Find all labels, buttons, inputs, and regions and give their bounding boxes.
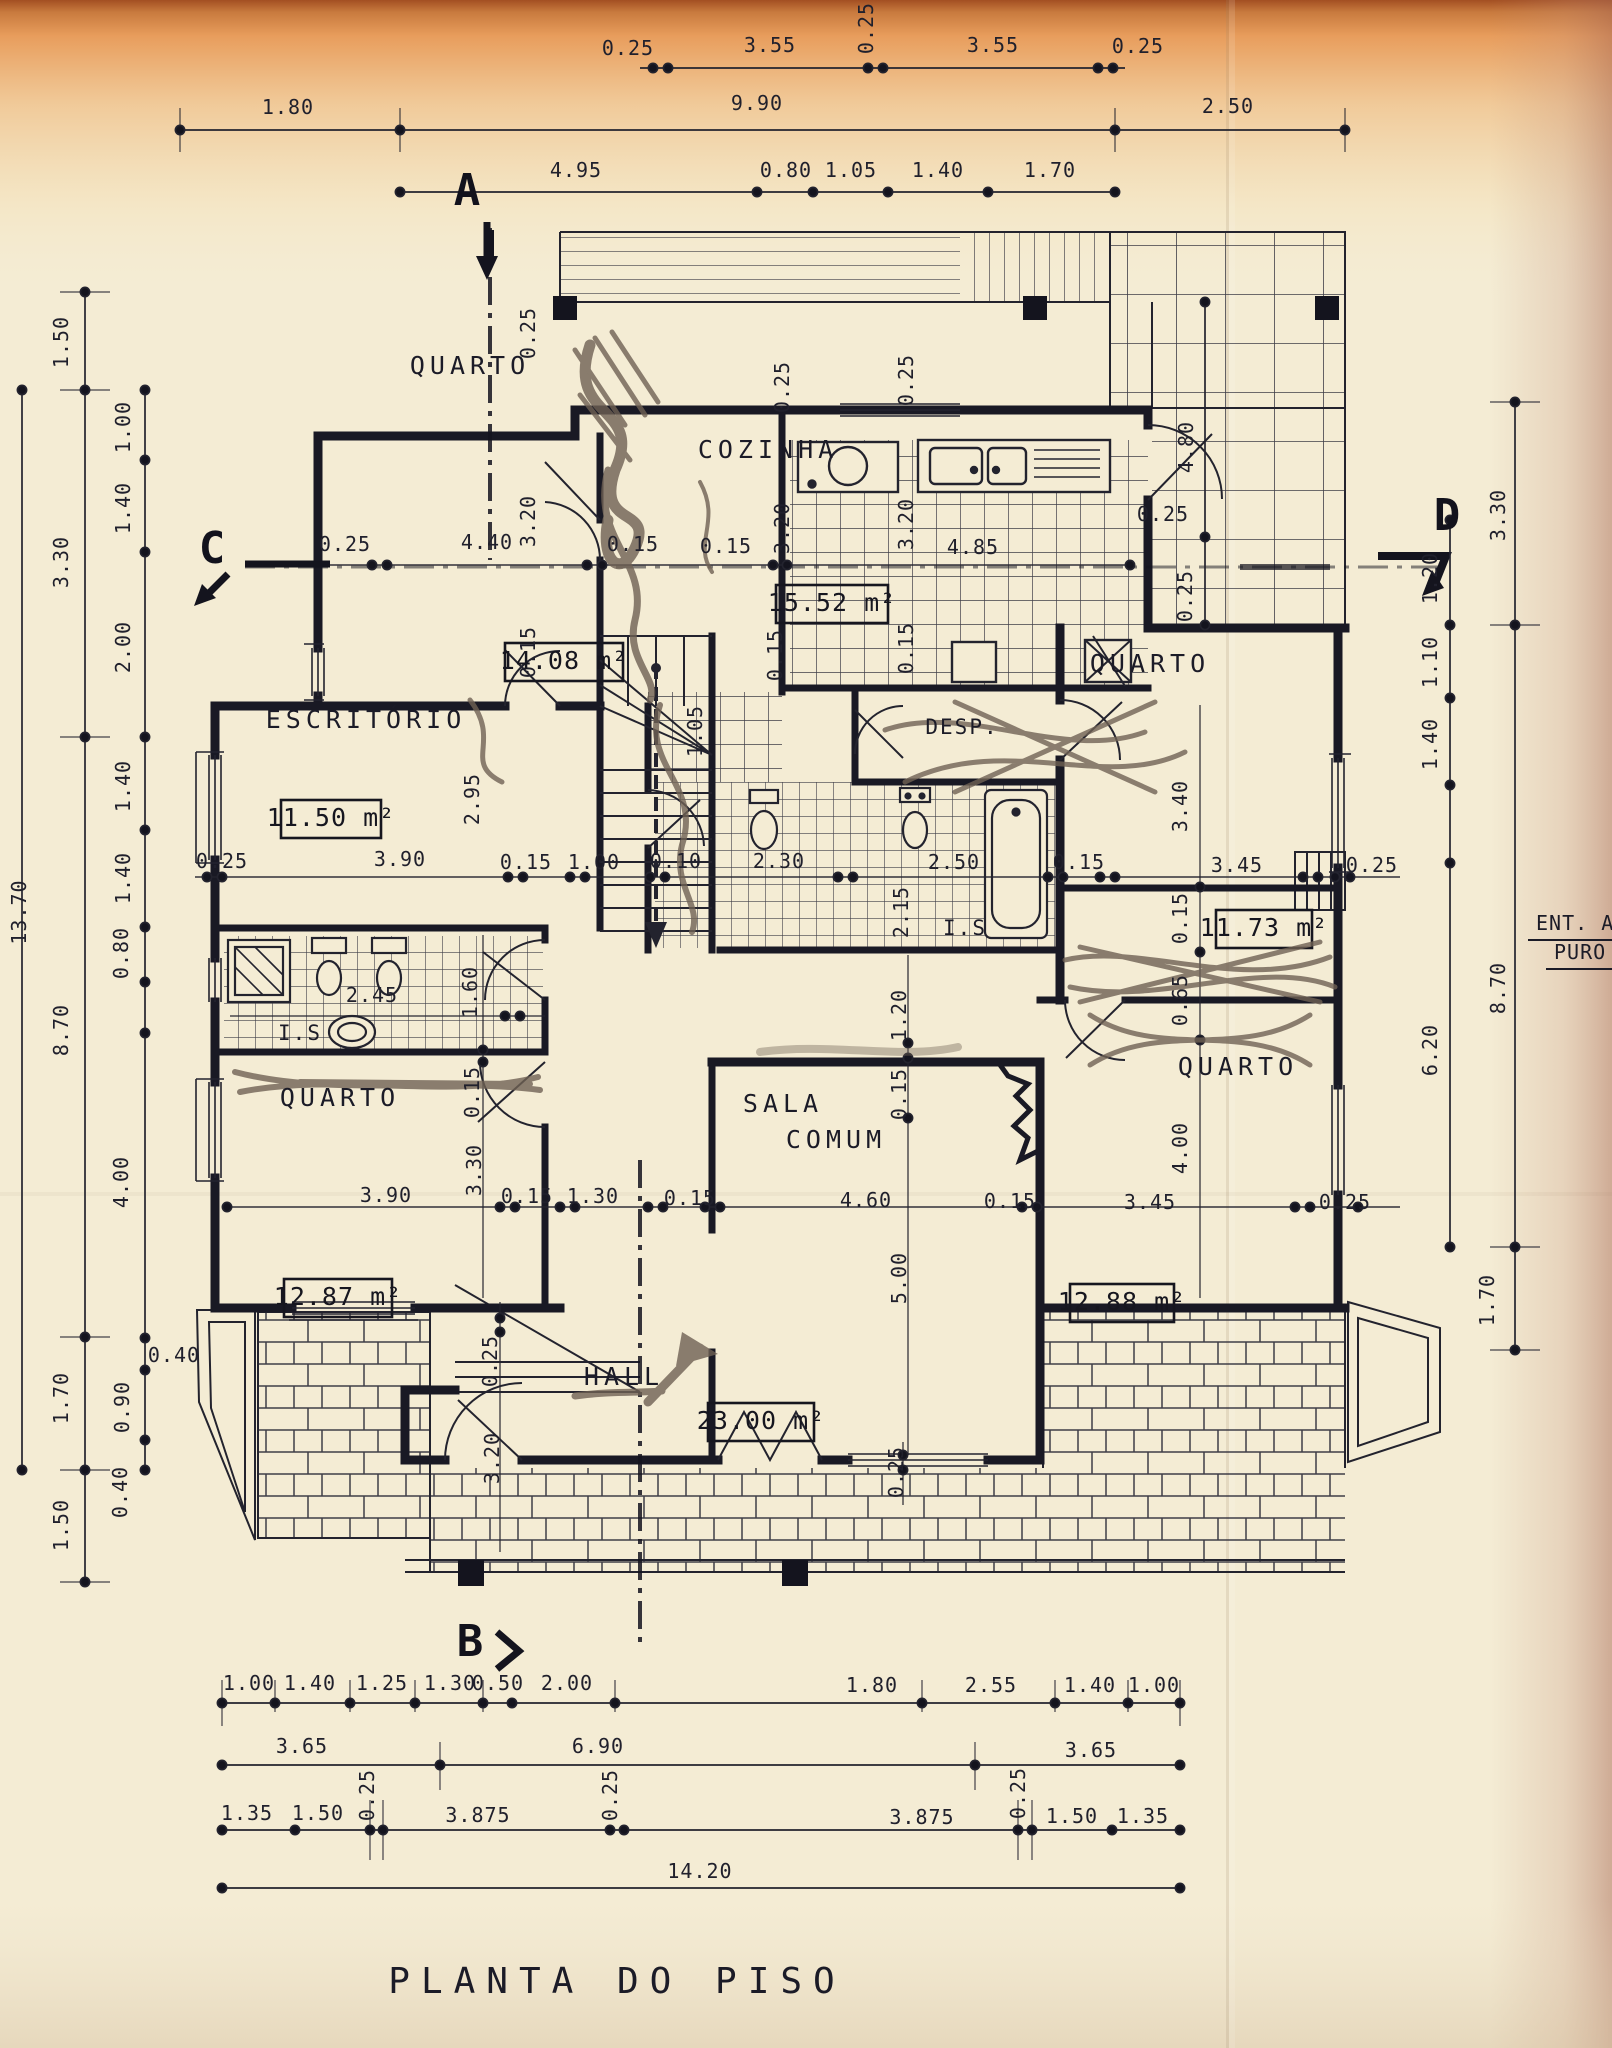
dimension-tick	[663, 63, 672, 72]
dimension-label: 0.25	[319, 532, 371, 556]
dimension-tick	[217, 1883, 226, 1892]
dimension-label: 0.15	[763, 629, 787, 681]
dimension-label: 3.90	[360, 1183, 412, 1207]
dimension-label: 3.45	[1211, 853, 1263, 877]
dimension-tick	[478, 1698, 487, 1707]
dimension-label: 3.90	[374, 847, 426, 871]
dimension-tick	[140, 1333, 149, 1342]
room-label: SALA	[743, 1089, 823, 1118]
drawing-title: PLANTA DO PISO	[388, 1961, 845, 2002]
dimension-label: 0.80	[109, 927, 133, 979]
dimension-label: 0.25	[196, 849, 248, 873]
dimension-tick	[582, 560, 591, 569]
scan-edge-shadow	[1490, 0, 1612, 2048]
dimension-label: 0.80	[760, 158, 812, 182]
dimension-label: 0.25	[1173, 570, 1197, 622]
dimension-label: 1.40	[111, 852, 135, 904]
dimension-label: 0.25	[478, 1335, 502, 1387]
dimension-label: 1.20	[887, 989, 911, 1041]
dimension-tick	[1445, 693, 1454, 702]
dimension-label: 0.15	[700, 534, 752, 558]
dimension-label: 2.00	[111, 621, 135, 673]
dimension-tick	[1445, 620, 1454, 629]
dimension-label: 2.50	[928, 850, 980, 874]
dimension-label: 2.15	[889, 886, 913, 938]
section-marker: C	[199, 523, 226, 574]
dimension-tick	[80, 1577, 89, 1586]
dimension-tick	[648, 63, 657, 72]
dimension-tick	[555, 1202, 564, 1211]
room-label: QUARTO	[1178, 1052, 1298, 1081]
dimension-label: 1.30	[567, 1184, 619, 1208]
dimension-tick	[80, 385, 89, 394]
room-label: QUARTO	[410, 351, 530, 380]
dimension-label: 8.70	[49, 1004, 73, 1056]
dimension-tick	[1110, 125, 1119, 134]
scanned-blueprint-sheet: 0.253.550.253.550.251.809.902.504.950.80…	[0, 0, 1612, 2048]
dimension-tick	[507, 1698, 516, 1707]
dimension-label: 0.25	[1319, 1190, 1371, 1214]
dimension-label: 1.80	[846, 1673, 898, 1697]
dimension-tick	[175, 125, 184, 134]
dimension-label: 0.15	[984, 1189, 1036, 1213]
dimension-tick	[395, 125, 404, 134]
dimension-tick	[808, 187, 817, 196]
dimension-tick	[1445, 1242, 1454, 1251]
dimension-label: 0.15	[460, 1066, 484, 1118]
dimension-tick	[140, 922, 149, 931]
dimension-label: 1.30	[424, 1671, 476, 1695]
dimension-label: 1.25	[356, 1671, 408, 1695]
dimension-tick	[597, 560, 606, 569]
dimension-label: 2.95	[460, 773, 484, 825]
dimension-label: 0.15	[607, 532, 659, 556]
dimension-tick	[17, 385, 26, 394]
dimension-label: 0.15	[664, 1186, 716, 1210]
dimension-tick	[435, 1760, 444, 1769]
dimension-tick	[365, 1825, 374, 1834]
dimension-label: 5.00	[887, 1252, 911, 1304]
dimension-tick	[1050, 1698, 1059, 1707]
dimension-label: 6.20	[1418, 1024, 1442, 1076]
dimension-label: 3.20	[516, 495, 540, 547]
dimension-tick	[1510, 397, 1519, 406]
dimension-label: 1.40	[912, 158, 964, 182]
dimension-tick	[140, 825, 149, 834]
dimension-label: 2.30	[753, 849, 805, 873]
dimension-tick	[217, 1698, 226, 1707]
dimension-tick	[80, 1332, 89, 1341]
dimension-tick	[80, 287, 89, 296]
dimension-label: 1.50	[292, 1801, 344, 1825]
dimension-tick	[1013, 1825, 1022, 1834]
dimension-label: 0.50	[472, 1671, 524, 1695]
dimension-label: 1.00	[568, 850, 620, 874]
room-bathroom	[655, 782, 1055, 948]
dimension-tick	[1200, 297, 1209, 306]
dimension-label: 3.55	[967, 33, 1019, 57]
dimension-label: 0.15	[1053, 850, 1105, 874]
dimension-label: 0.25	[1006, 1767, 1030, 1819]
dimension-tick	[290, 1825, 299, 1834]
dimension-label: 3.65	[1065, 1738, 1117, 1762]
dimension-label: 0.90	[110, 1381, 134, 1433]
dimension-label: 1.05	[683, 705, 707, 757]
room-label: QUARTO	[280, 1083, 400, 1112]
dimension-tick	[1175, 1698, 1184, 1707]
dimension-tick	[1330, 872, 1339, 881]
dimension-tick	[619, 1825, 628, 1834]
dimension-tick	[917, 1698, 926, 1707]
dimension-tick	[345, 1698, 354, 1707]
dimension-label: 4.95	[550, 158, 602, 182]
dimension-label: 3.30	[462, 1144, 486, 1196]
dimension-label: 3.30	[49, 536, 73, 588]
dimension-tick	[1107, 1825, 1116, 1834]
brick-terrace-right	[1043, 1312, 1345, 1468]
dimension-tick	[645, 872, 654, 881]
dimension-label: 0.15	[500, 850, 552, 874]
dimension-label: 0.15	[1168, 892, 1192, 944]
dimension-label: 0.25	[1137, 502, 1189, 526]
margin-note: PURO	[1554, 940, 1606, 964]
section-marker: A	[454, 165, 481, 216]
area-label: 11.73 m²	[1200, 913, 1328, 942]
dimension-label: 6.90	[572, 1734, 624, 1758]
dimension-label: 1.35	[221, 1801, 273, 1825]
dimension-tick	[17, 1465, 26, 1474]
room-label: I.S	[278, 1021, 322, 1045]
dimension-tick	[495, 1313, 504, 1322]
area-label: 12.87 m²	[274, 1282, 402, 1311]
dimension-tick	[217, 1825, 226, 1834]
deck-boards	[960, 232, 1110, 302]
dimension-tick	[140, 547, 149, 556]
dimension-label: 0.25	[602, 36, 654, 60]
dimension-tick	[1110, 187, 1119, 196]
dimension-tick	[140, 732, 149, 741]
dimension-label: 1.40	[1064, 1673, 1116, 1697]
dimension-label: 3.40	[1168, 780, 1192, 832]
dimension-label: 3.20	[894, 498, 918, 550]
dimension-tick	[1175, 1760, 1184, 1769]
dimension-tick	[1027, 1825, 1036, 1834]
dimension-tick	[605, 1825, 614, 1834]
dimension-label: 1.40	[111, 482, 135, 534]
dimension-label: 1.50	[49, 1499, 73, 1551]
dimension-label: 1.35	[1117, 1804, 1169, 1828]
dimension-label: 0.25	[854, 2, 878, 54]
dimension-tick	[883, 187, 892, 196]
dimension-label: 2.50	[1202, 94, 1254, 118]
dimension-label: 3.30	[1486, 489, 1510, 541]
dimension-tick	[140, 1465, 149, 1474]
area-label: 12.88 m²	[1058, 1287, 1186, 1316]
dimension-tick	[1175, 1883, 1184, 1892]
dimension-label: 0.15	[894, 622, 918, 674]
dimension-label: 1.80	[262, 95, 314, 119]
dimension-label: 2.00	[541, 1671, 593, 1695]
dimension-tick	[270, 1698, 279, 1707]
area-label: 15.52 m²	[768, 588, 896, 617]
floor-plan-drawing: 0.253.550.253.550.251.809.902.504.950.80…	[0, 0, 1612, 2048]
room-label: COMUM	[786, 1125, 886, 1154]
dimension-label: 8.70	[1486, 962, 1510, 1014]
dimension-label: 4.00	[1168, 1122, 1192, 1174]
dimension-label: 4.80	[1174, 421, 1198, 473]
dimension-tick	[395, 187, 404, 196]
dimension-tick	[1175, 1825, 1184, 1834]
dimension-label: 1.70	[49, 1372, 73, 1424]
margin-note: ENT. A	[1536, 911, 1612, 935]
dimension-tick	[80, 1465, 89, 1474]
deck-planks	[560, 232, 960, 302]
dimension-label: 1.40	[284, 1671, 336, 1695]
room-label: ESCRITÓRIO	[266, 704, 467, 734]
area-label: 14.08 m²	[500, 646, 628, 675]
section-marker: D	[1434, 490, 1461, 541]
dimension-label: 3.875	[889, 1805, 954, 1829]
dimension-tick	[140, 455, 149, 464]
room-label: COZINHA	[698, 435, 838, 464]
dimension-label: 0.65	[1168, 974, 1192, 1026]
dimension-tick	[217, 1760, 226, 1769]
dimension-tick	[983, 187, 992, 196]
dimension-label: 14.20	[667, 1859, 732, 1883]
dimension-label: 0.15	[887, 1068, 911, 1120]
dimension-label: 1.00	[111, 401, 135, 453]
dimension-label: 0.25	[894, 354, 918, 406]
dimension-label: 1.40	[1418, 718, 1442, 770]
dimension-tick	[410, 1698, 419, 1707]
dimension-tick	[970, 1760, 979, 1769]
dimension-tick	[782, 560, 791, 569]
room-label: QUARTO	[1090, 649, 1210, 678]
section-marker: B	[457, 1616, 484, 1667]
dimension-label: 3.65	[276, 1734, 328, 1758]
dimension-tick	[202, 872, 211, 881]
room-hall	[550, 1240, 708, 1454]
dimension-tick	[1200, 620, 1209, 629]
dimension-tick	[1108, 63, 1117, 72]
dimension-label: 4.00	[109, 1156, 133, 1208]
dimension-label: 9.90	[731, 91, 783, 115]
dimension-label: 4.85	[947, 535, 999, 559]
dimension-tick	[1200, 532, 1209, 541]
dimension-tick	[878, 63, 887, 72]
dimension-label: 3.875	[445, 1803, 510, 1827]
dimension-label: 1.70	[1475, 1274, 1499, 1326]
dimension-label: 3.20	[480, 1432, 504, 1484]
dimension-label: 0.25	[884, 1446, 908, 1498]
dimension-label: 1.50	[49, 316, 73, 368]
dimension-tick	[1093, 63, 1102, 72]
dimension-label: 13.70	[7, 879, 31, 944]
dimension-label: 0.10	[650, 849, 702, 873]
dimension-label: 1.20	[1418, 552, 1442, 604]
dimension-label: 0.40	[148, 1343, 200, 1367]
dimension-tick	[768, 560, 777, 569]
dimension-tick	[378, 1825, 387, 1834]
dimension-tick	[752, 187, 761, 196]
dimension-tick	[1445, 780, 1454, 789]
dimension-tick	[80, 732, 89, 741]
dimension-tick	[1123, 1698, 1132, 1707]
dimension-tick	[140, 385, 149, 394]
room-label: HALL	[584, 1362, 664, 1391]
dimension-label: 0.40	[108, 1466, 132, 1518]
dimension-tick	[1445, 858, 1454, 867]
area-label: 23.00 m²	[697, 1406, 825, 1435]
dimension-label: 1.05	[825, 158, 877, 182]
dimension-label: 1.00	[1128, 1673, 1180, 1697]
dimension-label: 0.15	[501, 1184, 553, 1208]
dimension-label: 3.45	[1124, 1190, 1176, 1214]
dimension-tick	[1510, 1345, 1519, 1354]
dimension-label: 2.45	[346, 983, 398, 1007]
dimension-label: 1.00	[223, 1671, 275, 1695]
room-label: I.S	[943, 916, 987, 940]
dimension-tick	[140, 977, 149, 986]
dimension-label: 0.25	[770, 361, 794, 413]
dimension-label: 3.20	[770, 502, 794, 554]
dimension-label: 4.40	[461, 530, 513, 554]
dimension-label: 2.55	[965, 1673, 1017, 1697]
dimension-tick	[1195, 882, 1204, 891]
dimension-label: 1.40	[111, 760, 135, 812]
dimension-label: 1.60	[458, 966, 482, 1018]
dimension-label: 0.25	[355, 1769, 379, 1821]
dimension-tick	[1510, 1242, 1519, 1251]
dimension-tick	[140, 1435, 149, 1444]
dimension-tick	[140, 1028, 149, 1037]
dimension-tick	[643, 1202, 652, 1211]
dimension-label: 0.25	[598, 1769, 622, 1821]
dimension-tick	[863, 63, 872, 72]
dimension-tick	[1340, 125, 1349, 134]
dimension-tick	[1195, 947, 1204, 956]
dimension-label: 3.55	[744, 33, 796, 57]
dimension-label: 1.50	[1046, 1804, 1098, 1828]
dimension-label: 4.60	[840, 1188, 892, 1212]
dimension-label: 0.25	[1112, 34, 1164, 58]
dimension-tick	[610, 1698, 619, 1707]
area-label: 11.50 m²	[267, 803, 395, 832]
room-label: DESP.	[925, 715, 998, 739]
dimension-label: 1.10	[1418, 636, 1442, 688]
dimension-label: 0.25	[1346, 853, 1398, 877]
dimension-tick	[1510, 620, 1519, 629]
dimension-label: 1.70	[1024, 158, 1076, 182]
